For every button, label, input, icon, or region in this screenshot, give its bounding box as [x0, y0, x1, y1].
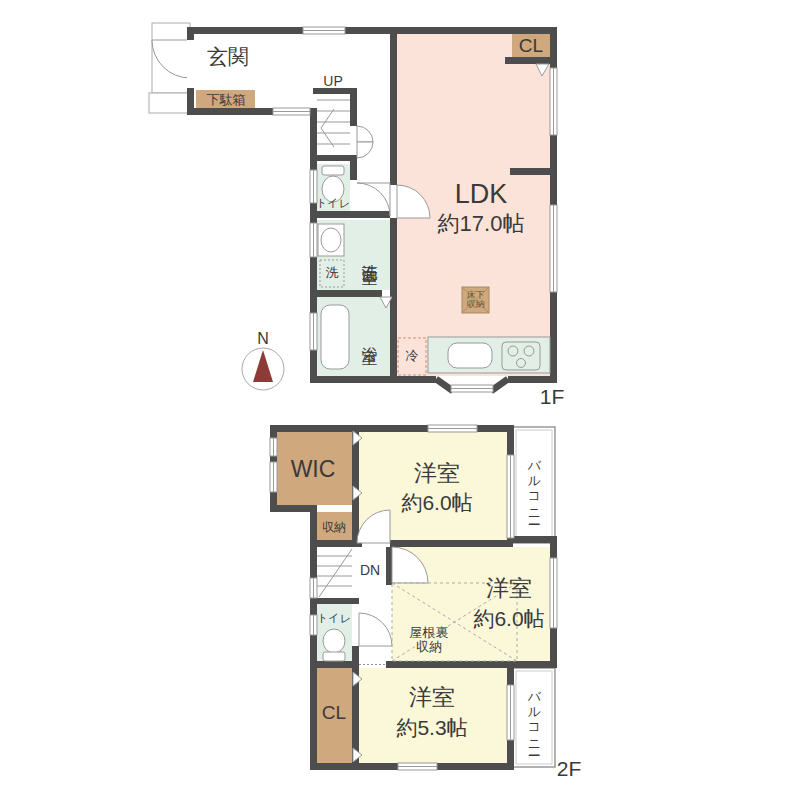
toilet2-door-arc — [359, 613, 392, 646]
wall-segment — [310, 598, 359, 604]
ldk-size-label: 約17.0帖 — [438, 212, 525, 235]
bedroom-south-size: 約5.3帖 — [396, 717, 467, 739]
attic-storage-label: 屋根裏 収納 — [410, 626, 449, 653]
toilet2-label: トイレ — [317, 613, 351, 625]
underfloor-storage-label: 床下 収納 — [467, 291, 485, 310]
wall-segment — [350, 158, 357, 180]
entrance-label: 玄関 — [207, 46, 249, 68]
storage2-label: 収納 — [322, 521, 346, 534]
bay-window — [451, 385, 493, 392]
wall-segment — [313, 88, 357, 94]
toilet1-tank — [322, 166, 344, 175]
attic-storage-line1: 屋根裏 — [410, 626, 449, 640]
wic-label: WIC — [291, 457, 336, 481]
stair-door-arc — [357, 142, 373, 158]
stair-treads — [317, 556, 352, 586]
floor-plan-canvas: 玄関 下駄箱 UP トイレ 洗面室 洗 浴室 LDK 約17.0帖 CL 床下 … — [0, 0, 800, 800]
washroom-label: 洗面室 — [361, 252, 378, 258]
stair-treads — [317, 100, 350, 144]
wall-segment — [507, 661, 557, 668]
stair-arrow — [321, 109, 334, 147]
balcony-south-label: バルコニー — [527, 681, 541, 750]
wall-segment — [310, 540, 362, 547]
bay-window-wall — [491, 379, 508, 391]
wall-segment — [386, 661, 513, 668]
stairs-up — [317, 100, 350, 147]
washbasin — [321, 228, 341, 252]
entrance-step — [149, 93, 192, 113]
bay-window-wall — [436, 379, 453, 391]
bedroom-north-size: 約6.0帖 — [401, 492, 472, 514]
wall-segment — [187, 27, 557, 34]
bedroom-middle-label: 洋室 — [486, 576, 532, 600]
stairs-down-label: DN — [360, 563, 380, 578]
wall-segment — [508, 376, 557, 383]
stairs-down — [317, 549, 352, 597]
kitchen-sink — [448, 343, 492, 368]
attic-storage-line2: 収納 — [416, 640, 442, 654]
wall-segment — [350, 94, 357, 126]
stair-door-arc — [357, 126, 373, 142]
shoe-cabinet-label: 下駄箱 — [207, 93, 246, 107]
wall-segment — [390, 27, 397, 185]
refrigerator-label: 冷 — [406, 349, 419, 363]
entrance-opening — [187, 40, 194, 88]
wall-segment — [510, 168, 557, 175]
wall-segment — [386, 547, 392, 585]
wall-segment — [390, 540, 513, 547]
closet2-label: CL — [322, 703, 346, 723]
bathtub — [321, 305, 349, 369]
floor2-label: 2F — [557, 758, 582, 780]
bedroom-middle-size: 約6.0帖 — [473, 608, 544, 630]
washing-machine-label: 洗 — [326, 266, 339, 280]
wall-segment — [310, 211, 390, 218]
north-label: N — [257, 331, 269, 348]
floor1-label: 1F — [540, 386, 565, 408]
bedroom-south-label: 洋室 — [409, 685, 455, 709]
wall-segment — [310, 661, 359, 668]
bathroom-label: 浴室 — [361, 334, 378, 338]
wall-segment — [505, 57, 557, 64]
closet1-label: CL — [519, 36, 543, 56]
wall-segment — [310, 376, 436, 383]
north-compass — [242, 348, 284, 390]
toilet2-tank — [323, 652, 345, 661]
toilet1-label: トイレ — [316, 198, 350, 210]
toilet2-bowl — [323, 629, 345, 653]
stairs-up-label: UP — [323, 74, 342, 89]
underfloor-storage-line2: 収納 — [467, 300, 485, 309]
floor-plan-drawing — [0, 0, 800, 800]
ldk-label: LDK — [455, 180, 508, 208]
balcony-north-label: バルコニー — [527, 450, 541, 519]
bedroom-north-label: 洋室 — [414, 461, 460, 485]
wall-segment — [310, 290, 382, 297]
wall-segment — [270, 505, 317, 512]
